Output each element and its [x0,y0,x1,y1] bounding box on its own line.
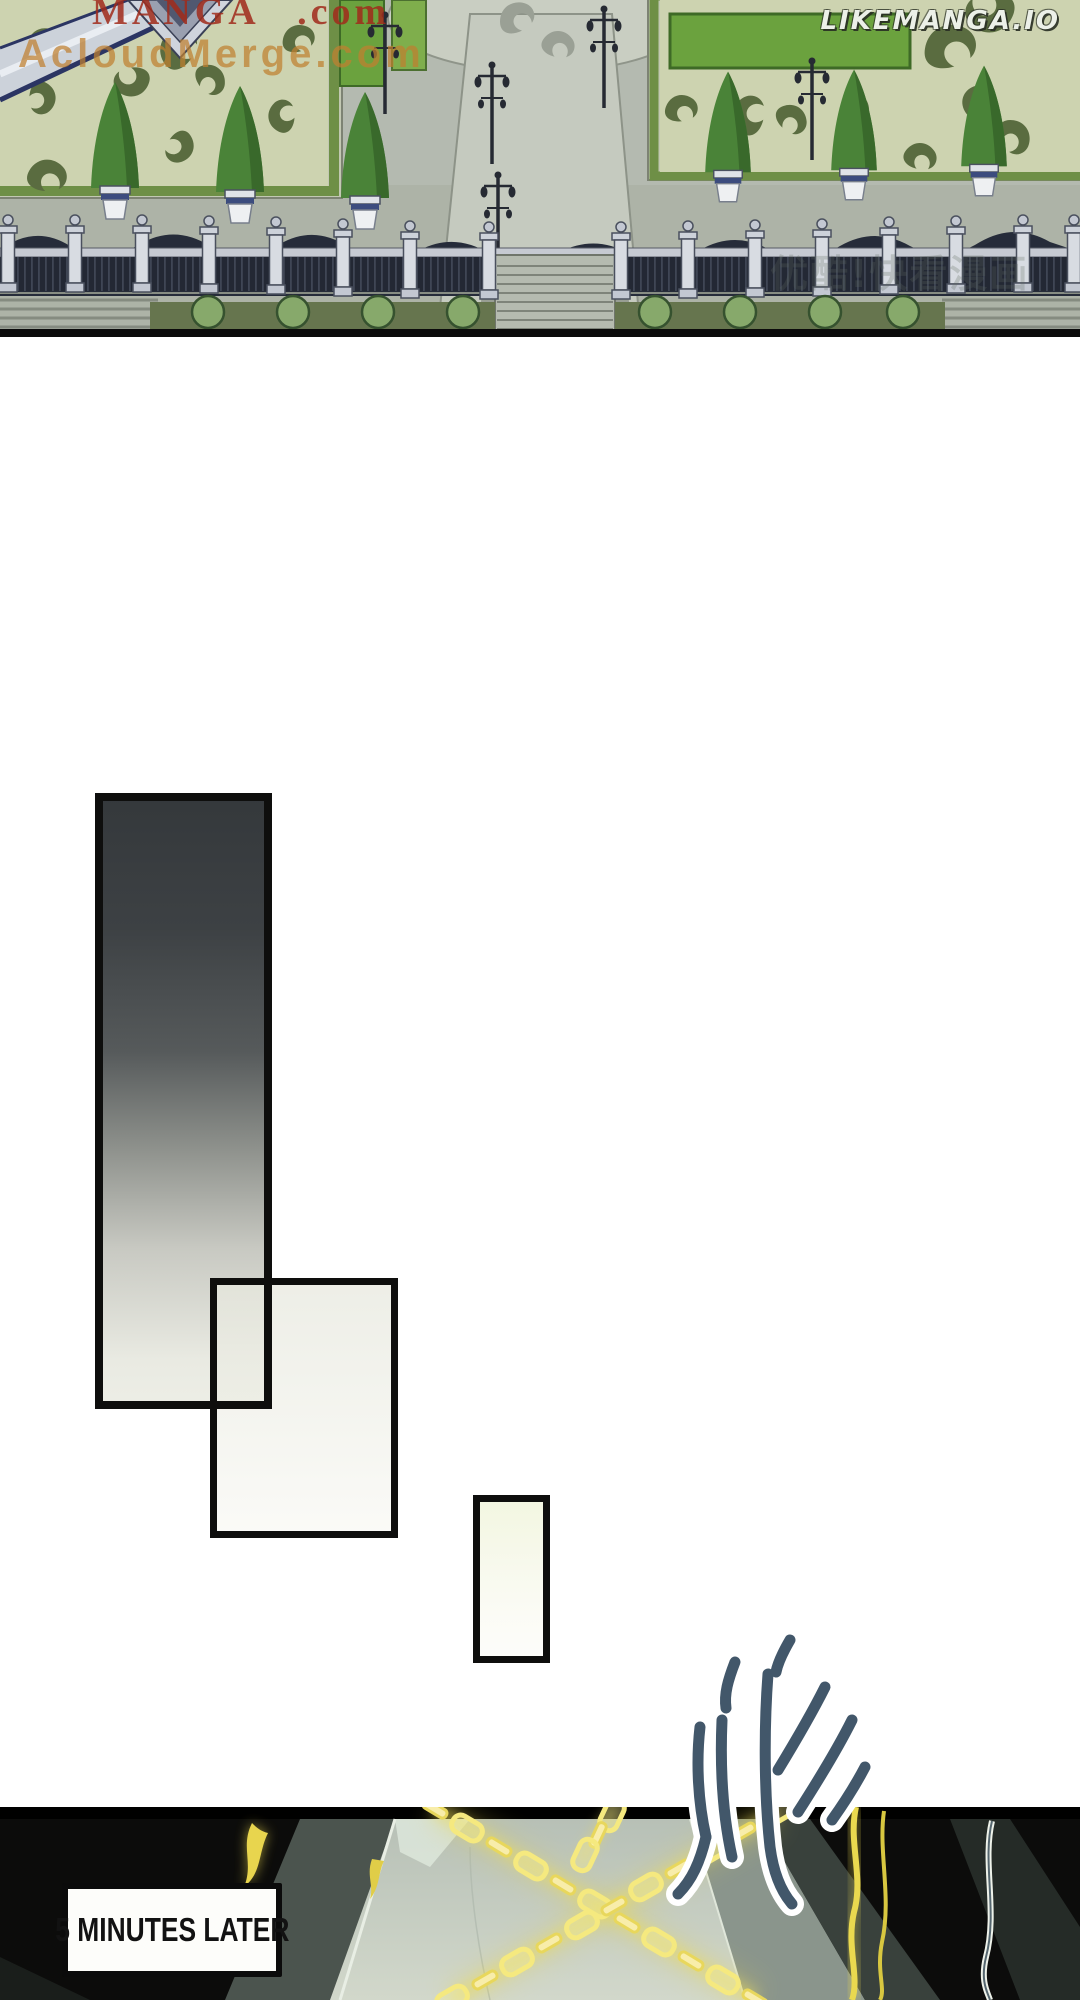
steps [478,255,632,337]
watermark-top-left-line2: AcloudMerge.com [18,32,425,77]
panel-border [0,329,1080,337]
watermark-top-left-line1: MANGA .com [92,0,390,34]
sfx-glyph: 哗 [640,1632,880,1922]
transition-panel-small-frame [473,1495,550,1663]
caption-box: 5 MINUTES LATER [62,1883,282,1977]
faint-cn-watermark: 优酷!快看漫画 [770,243,1029,298]
manga-page: MANGA .com AcloudMerge.com LIKEMANGA.IO … [0,0,1080,2000]
site-watermark: LIKEMANGA.IO [820,6,1060,36]
caption-text: 5 MINUTES LATER [55,1911,289,1949]
panel-top-border [0,1807,1080,1819]
transition-panel-mid-frame [210,1278,398,1538]
